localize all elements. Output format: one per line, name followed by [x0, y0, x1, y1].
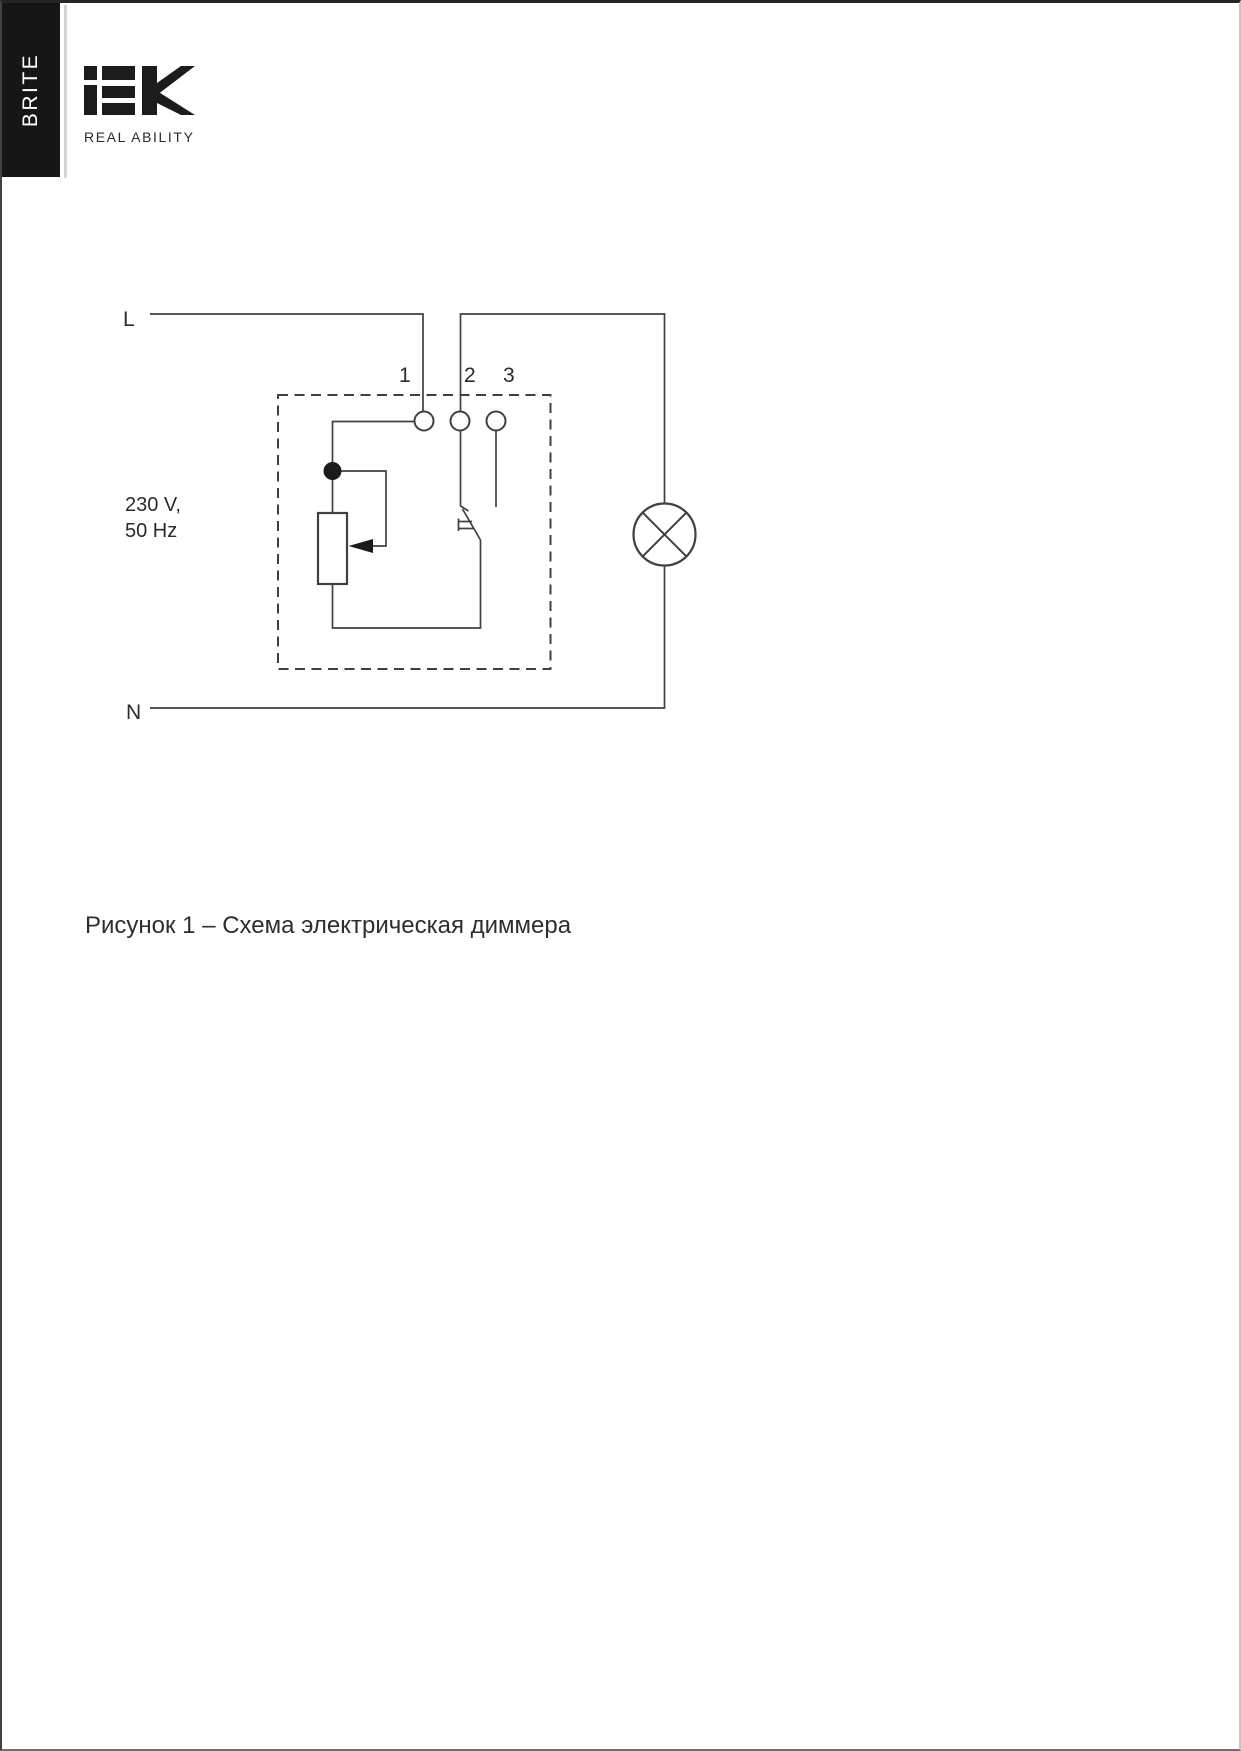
supply-frequency-line: 50 Hz [125, 518, 181, 544]
line-l-feed-wire [150, 314, 423, 412]
terminal2-to-lamp-wire [461, 314, 665, 504]
switch-contact-nub [461, 506, 469, 511]
dimmer-wiring-schematic [2, 3, 1241, 1751]
supply-rating-label: 230 V, 50 Hz [125, 492, 181, 544]
terminal-label-1: 1 [399, 365, 411, 386]
terminal1-to-potentiometer-wire [333, 422, 415, 514]
wiper-arrowhead-icon [349, 539, 374, 553]
terminal-label-3: 3 [503, 365, 515, 386]
manual-page: BRITE REAL ABILITY [0, 0, 1241, 1751]
junction-dot [324, 462, 342, 480]
lamp-cross-icon [643, 513, 687, 557]
wiper-arrow-wire [342, 471, 387, 546]
terminal-2-circle [451, 412, 470, 431]
line-l-label: L [123, 309, 135, 330]
supply-voltage-line: 230 V, [125, 492, 181, 518]
terminal-3-circle [487, 412, 506, 431]
potentiometer-body [318, 513, 347, 584]
terminal-1-circle [415, 412, 434, 431]
terminal-label-2: 2 [464, 365, 476, 386]
neutral-n-label: N [126, 702, 141, 723]
neutral-return-wire [150, 566, 665, 709]
figure-caption: Рисунок 1 – Схема электрическая диммера [85, 912, 571, 940]
switch-blade [463, 509, 481, 540]
potentiometer-to-switch-wire [333, 540, 481, 628]
